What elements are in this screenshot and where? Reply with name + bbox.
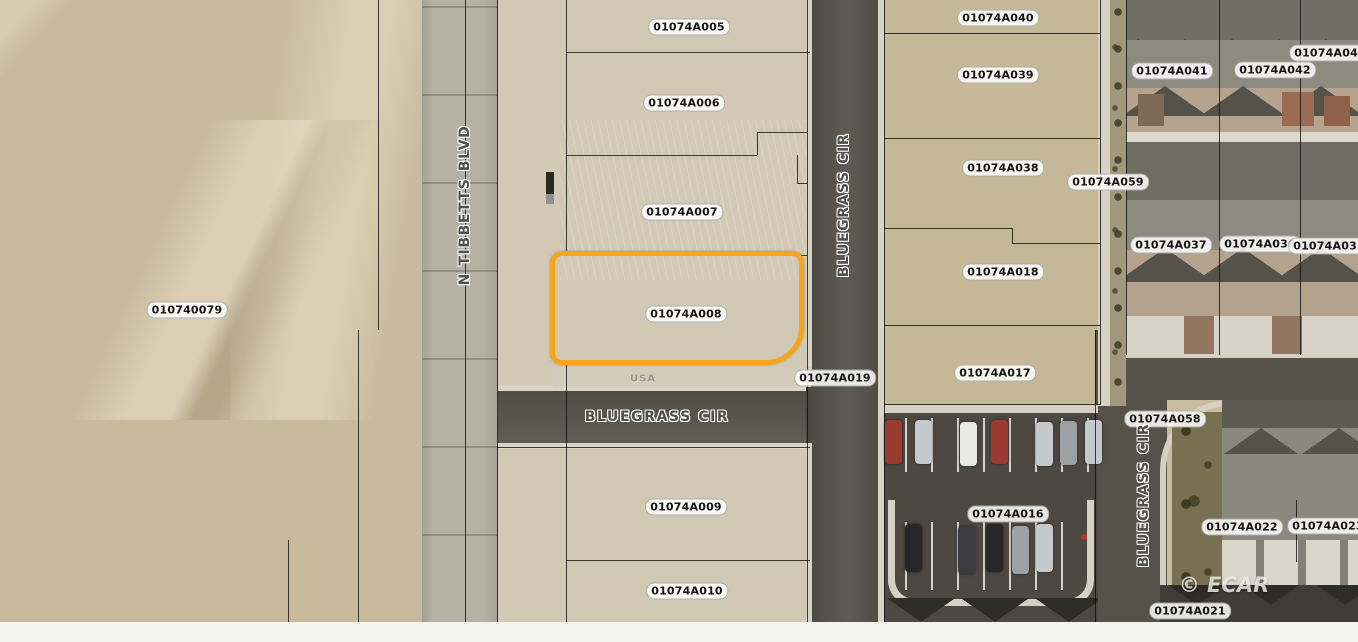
bottom-margin <box>0 622 1358 642</box>
parcel-label-01074A005: 01074A005 <box>648 19 730 36</box>
map-labels-layer: 01074A00501074A04001074A00601074A0390107… <box>0 0 1358 642</box>
street-label-bluegrass-cir: BLUEGRASS CIR <box>585 409 730 425</box>
parcel-label-01074A021: 01074A021 <box>1149 603 1231 620</box>
parcel-label-01074A041: 01074A041 <box>1131 63 1213 80</box>
parcel-label-01074A007: 01074A007 <box>641 204 723 221</box>
parcel-label-01074A040: 01074A040 <box>957 10 1039 27</box>
parcel-label-01074A022: 01074A022 <box>1201 519 1283 536</box>
street-label-bluegrass-cir: BLUEGRASS CIR <box>1136 423 1152 568</box>
parcel-label-01074A019: 01074A019 <box>794 370 876 387</box>
parcel-label-01074A039: 01074A039 <box>957 67 1039 84</box>
parcel-label-01074A006: 01074A006 <box>643 95 725 112</box>
parcel-label-01074A016: 01074A016 <box>967 506 1049 523</box>
parcel-label-01074A018: 01074A018 <box>962 264 1044 281</box>
parcel-label-01074A035: 01074A035 <box>1288 238 1358 255</box>
parcel-map[interactable]: 01074A00501074A04001074A00601074A0390107… <box>0 0 1358 642</box>
parcel-label-010740079: 010740079 <box>147 302 228 319</box>
parcel-label-01074A042: 01074A042 <box>1234 62 1316 79</box>
parcel-label-01074A023: 01074A023 <box>1287 518 1358 535</box>
parcel-label-01074A038: 01074A038 <box>962 160 1044 177</box>
street-label-n-tibbetts-blvd: N TIBBETTS BLVD <box>457 125 473 286</box>
ecar-watermark: © ECAR <box>1179 573 1270 597</box>
parcel-label-01074A059: 01074A059 <box>1067 174 1149 191</box>
street-label-bluegrass-cir: BLUEGRASS CIR <box>836 133 852 278</box>
parcel-label-01074A010: 01074A010 <box>646 583 728 600</box>
parcel-label-01074A037: 01074A037 <box>1130 237 1212 254</box>
parcel-label-01074A017: 01074A017 <box>954 365 1036 382</box>
owner-annotation: USA <box>630 374 656 385</box>
parcel-label-01074A008: 01074A008 <box>645 306 727 323</box>
parcel-label-01074A009: 01074A009 <box>645 499 727 516</box>
parcel-label-01074A043: 01074A043 <box>1289 45 1358 62</box>
